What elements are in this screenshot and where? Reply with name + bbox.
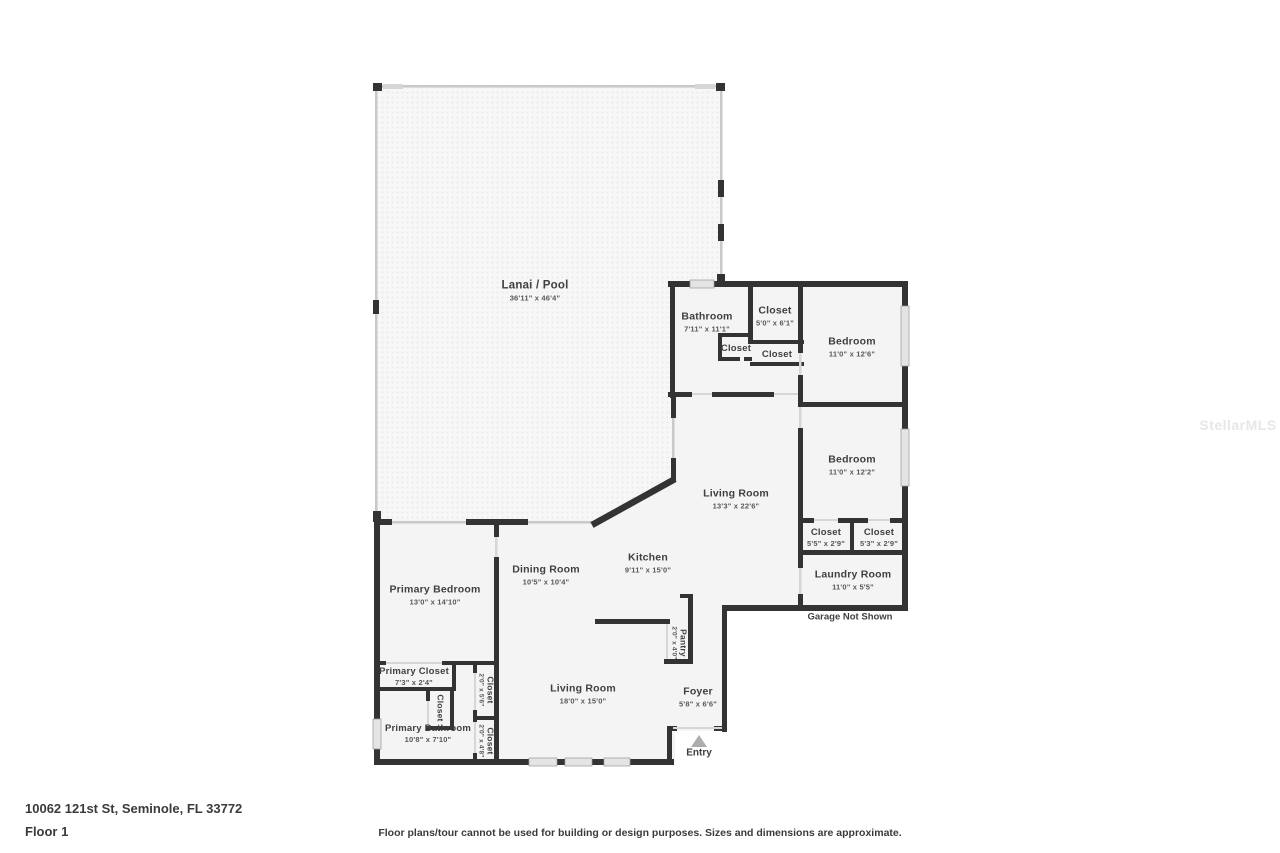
- room-label-living-room-1: Living Room 13'3" x 22'6": [703, 487, 769, 510]
- room-label-pantry: Pantry 2'0" x 4'0": [669, 626, 688, 659]
- room-label-closet-v1: Closet 2'0" x 5'6": [476, 673, 495, 706]
- room-label-laundry-room: Laundry Room 11'0" x 5'5": [815, 568, 892, 591]
- watermark: StellarMLS: [1199, 417, 1276, 433]
- room-label-bedroom-2: Bedroom 11'0" x 12'2": [828, 453, 876, 476]
- room-label-primary-bedroom: Primary Bedroom 13'0" x 14'10": [389, 583, 480, 606]
- room-label-dining-room: Dining Room 10'5" x 10'4": [512, 563, 580, 586]
- room-label-living-room-2: Living Room 18'0" x 15'0": [550, 682, 616, 705]
- room-label-lanai: Lanai / Pool 36'11" x 46'4": [502, 279, 569, 304]
- room-label-closet-vert-small: Closet: [434, 694, 445, 721]
- room-label-hall-closet-2: Closet: [762, 349, 792, 361]
- floor-plan-page: Lanai / Pool 36'11" x 46'4" Bathroom 7'1…: [0, 0, 1280, 853]
- room-label-kitchen: Kitchen 9'11" x 15'0": [625, 551, 671, 574]
- room-label-hall-closet: Closet 5'0" x 6'1": [756, 304, 794, 327]
- address-line: 10062 121st St, Seminole, FL 33772: [25, 801, 242, 816]
- room-label-linen-closet: Closet: [721, 343, 751, 355]
- room-label-closet-v2: Closet 2'0" x 4'8": [476, 724, 495, 757]
- floor-plan-canvas: [0, 0, 1280, 853]
- room-label-primary-bathroom: Primary Bathroom 10'8" x 7'10": [385, 723, 471, 745]
- address-block: 10062 121st St, Seminole, FL 33772 Floor…: [25, 801, 242, 839]
- room-label-bedroom-1: Bedroom 11'0" x 12'6": [828, 335, 876, 358]
- disclaimer-text: Floor plans/tour cannot be used for buil…: [378, 827, 901, 839]
- entry-arrow-icon: [691, 735, 707, 747]
- room-label-primary-closet: Primary Closet 7'3" x 2'4": [379, 666, 449, 688]
- room-label-bathroom: Bathroom 7'11" x 11'1": [681, 310, 732, 333]
- garage-note: Garage Not Shown: [808, 612, 893, 623]
- room-label-closet-b: Closet 5'3" x 2'9": [860, 527, 898, 549]
- room-label-closet-a: Closet 5'5" x 2'9": [807, 527, 845, 549]
- floor-label: Floor 1: [25, 824, 242, 839]
- entry-label: Entry: [686, 748, 712, 759]
- room-label-foyer: Foyer 5'8" x 6'6": [679, 685, 717, 708]
